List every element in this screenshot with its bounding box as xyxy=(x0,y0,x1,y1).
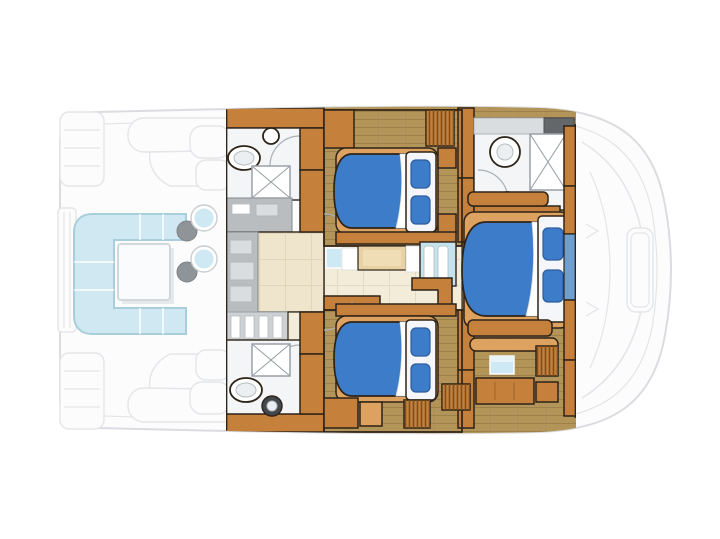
sink xyxy=(263,128,279,144)
vanity-counter xyxy=(474,118,544,134)
appliance-2 xyxy=(230,262,254,280)
cabinet xyxy=(300,170,324,232)
chest xyxy=(536,382,558,402)
cabinet xyxy=(300,128,324,170)
bed-top-rail xyxy=(468,192,548,206)
edge-cabinet xyxy=(564,126,576,186)
toilet-bowl xyxy=(236,383,256,397)
cabinet xyxy=(300,312,324,354)
step-slat-3 xyxy=(259,316,268,338)
stool-highlight xyxy=(490,356,514,362)
toilet-bowl xyxy=(234,151,254,165)
toilet-bowl xyxy=(497,144,513,160)
bench-cushion-blue xyxy=(326,248,342,268)
bed-mattress xyxy=(334,322,408,396)
pillow xyxy=(411,160,430,188)
bench-cushion-white-2 xyxy=(406,246,420,272)
cabinet xyxy=(458,108,474,178)
edge-cabinet xyxy=(564,360,576,416)
bistro-table-lower-top xyxy=(195,250,214,269)
sink-drain xyxy=(267,401,277,411)
appliance-3 xyxy=(230,286,252,302)
louver-stripes xyxy=(536,346,558,376)
bench-cushion-white xyxy=(342,248,358,270)
trim-top-left xyxy=(226,108,324,128)
swim-platform-upper xyxy=(60,112,104,186)
bed-head-rail xyxy=(336,304,456,316)
bed-foot-rail xyxy=(468,320,552,336)
step-slat xyxy=(424,246,434,282)
desk xyxy=(476,378,534,404)
hull-edge-strip xyxy=(564,126,576,416)
appliance-1 xyxy=(230,240,252,254)
step-slat xyxy=(438,246,448,282)
wardrobe xyxy=(324,110,354,148)
yacht-deck-plan-page xyxy=(0,0,720,539)
side-step-upper-1 xyxy=(190,126,230,158)
step-slat-2 xyxy=(245,316,254,338)
side-step-lower-2 xyxy=(196,350,230,380)
nightstand xyxy=(438,214,456,234)
side-step-upper-2 xyxy=(196,160,230,190)
nightstand xyxy=(438,148,456,168)
locker xyxy=(360,402,382,426)
edge-cabinet xyxy=(564,300,576,360)
louver-stripes xyxy=(404,400,430,428)
trim-bottom-left xyxy=(226,414,324,432)
bistro-table-upper-top xyxy=(195,209,214,228)
interior-cutaway xyxy=(226,104,576,440)
louver-stripes xyxy=(442,384,470,410)
pillow xyxy=(411,364,430,392)
galley-sink xyxy=(232,204,250,214)
cockpit-table xyxy=(118,244,170,300)
bench-seat-pad xyxy=(363,250,401,266)
pillow xyxy=(411,196,430,224)
swim-platform-lower xyxy=(60,353,104,429)
pillow xyxy=(543,228,563,260)
louver-stripes xyxy=(426,110,454,146)
wardrobe xyxy=(324,398,358,428)
step-slat-1 xyxy=(231,316,240,338)
pillow xyxy=(411,328,430,356)
pillow xyxy=(543,270,563,302)
bed-mattress xyxy=(462,222,540,316)
step-slat-4 xyxy=(273,316,282,338)
side-step-lower-1 xyxy=(190,382,230,414)
deck-plan-figure xyxy=(0,0,720,539)
cabinet xyxy=(300,354,324,414)
bed-mattress xyxy=(334,154,408,228)
edge-cabinet xyxy=(564,186,576,234)
galley-counter-item xyxy=(256,204,278,216)
hull-window xyxy=(564,234,576,300)
